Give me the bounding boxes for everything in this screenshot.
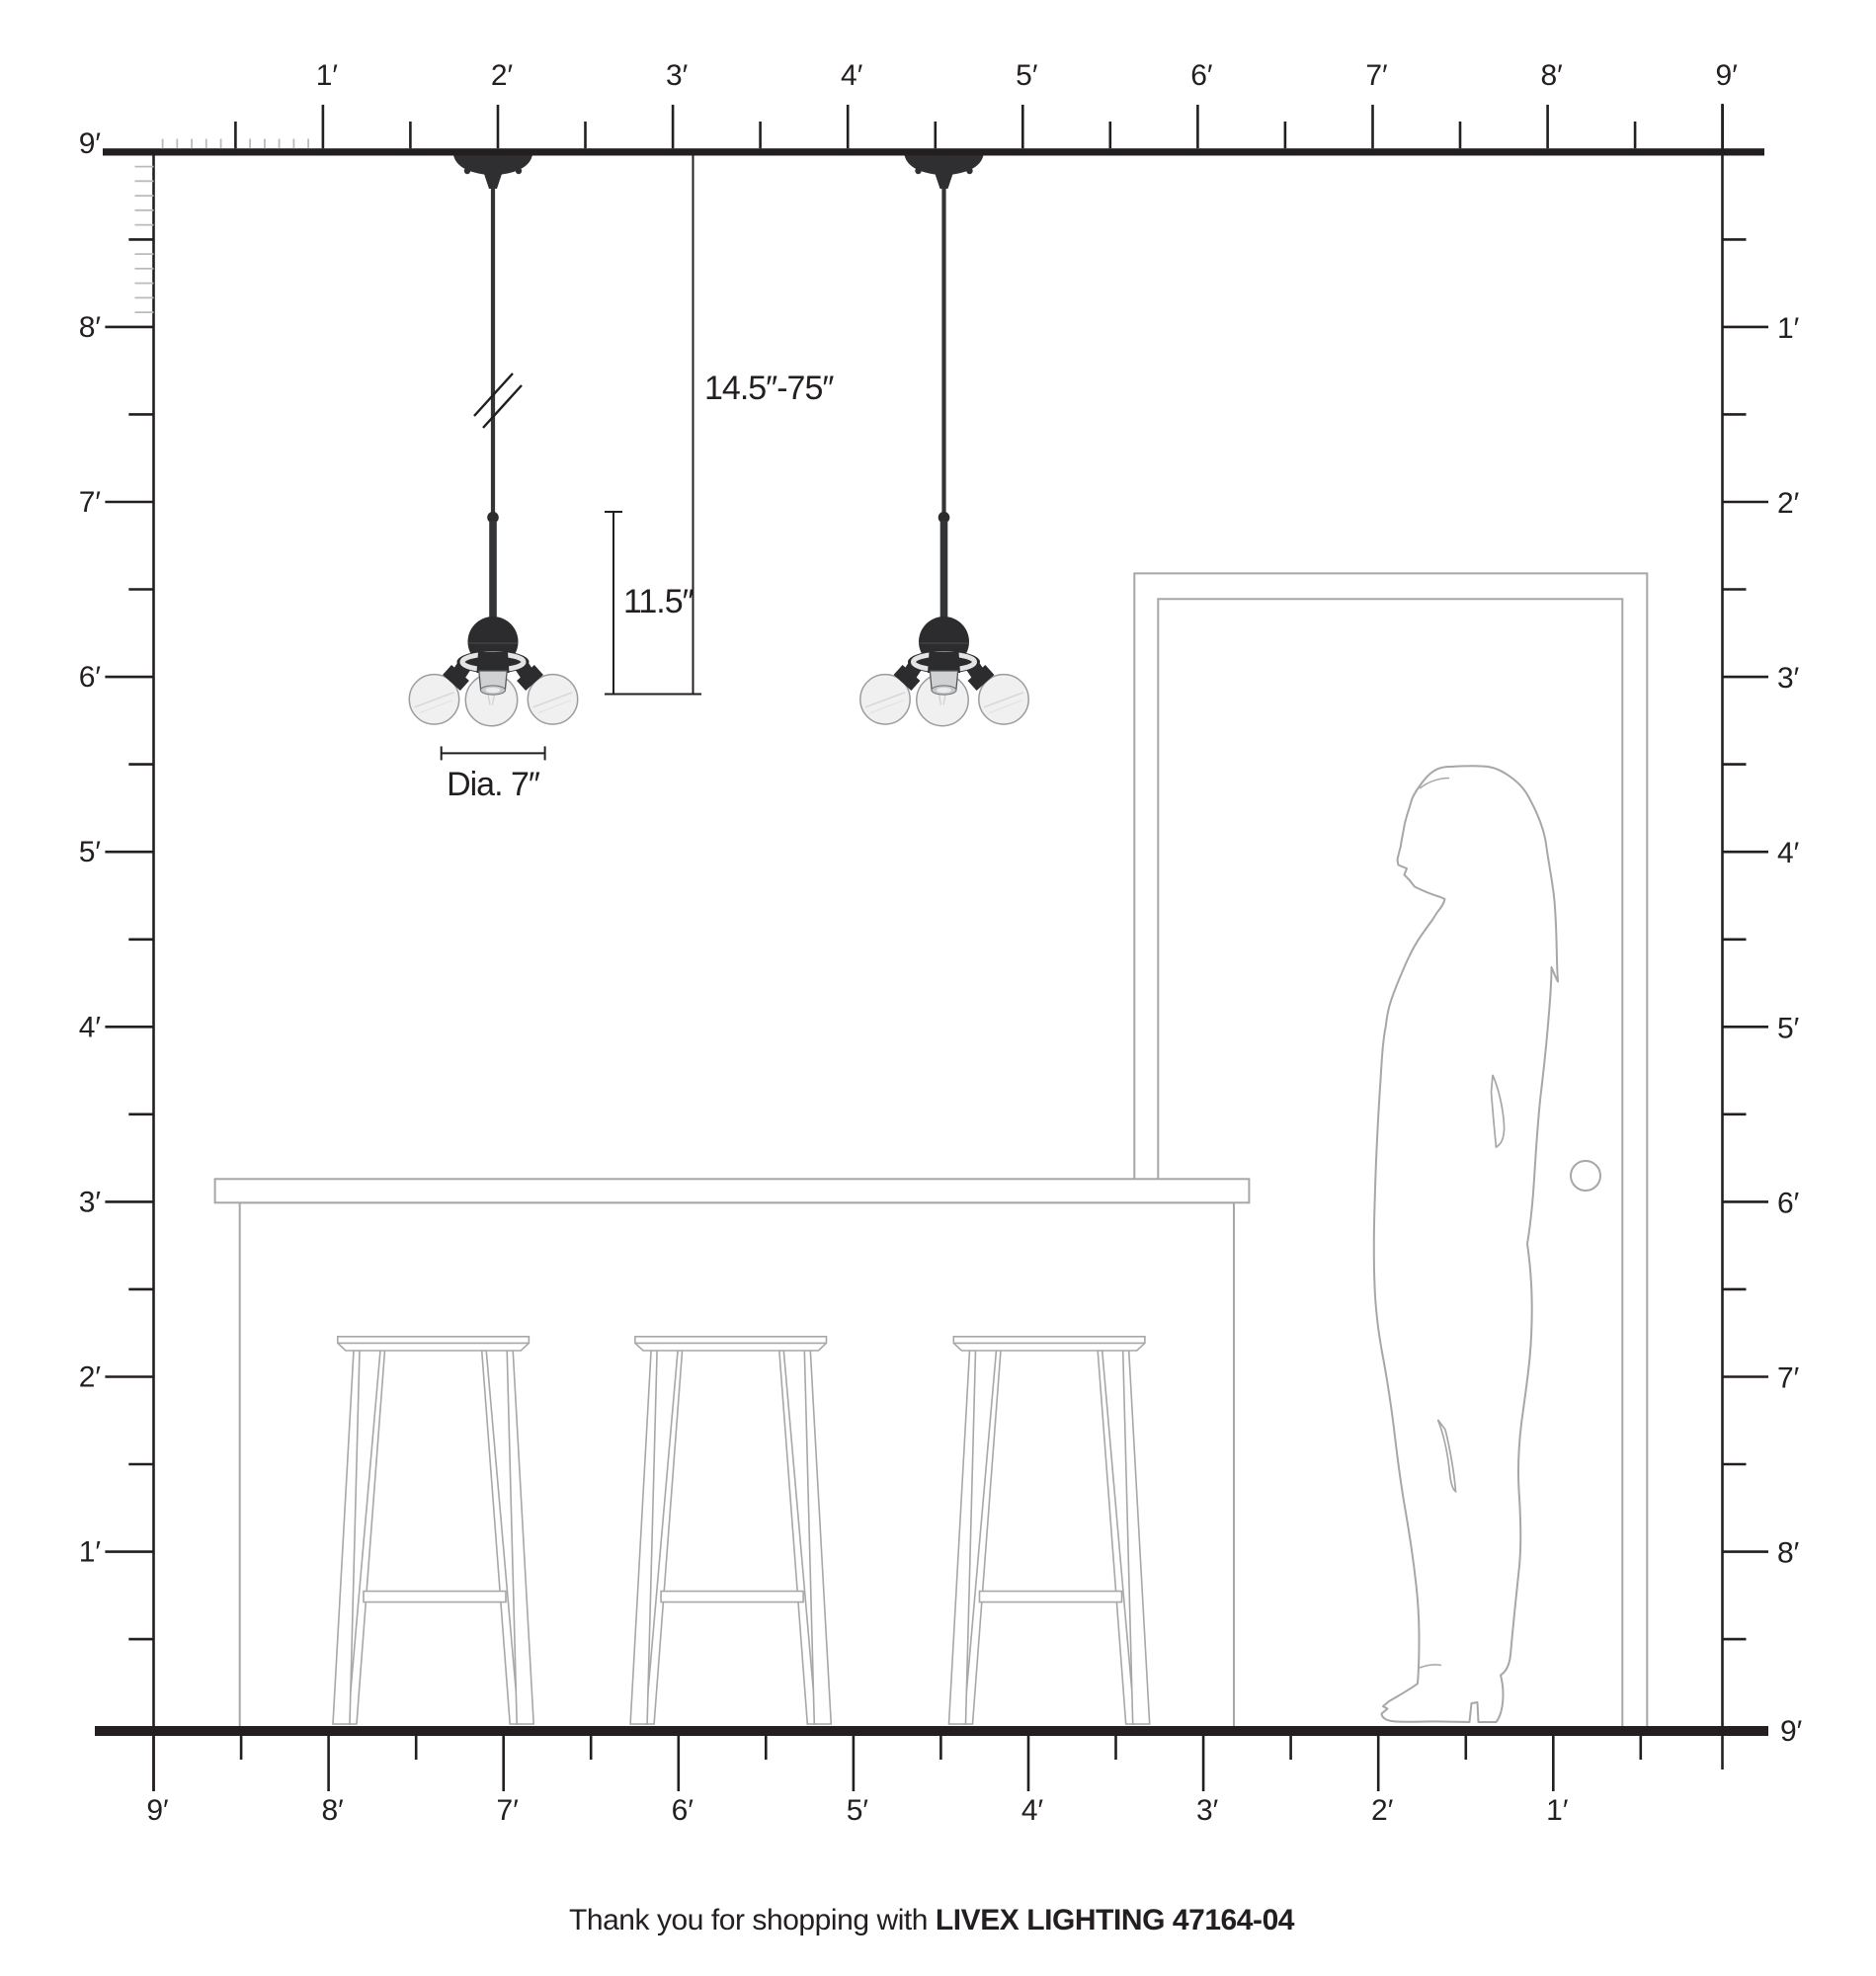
svg-text:3′: 3′ xyxy=(1777,662,1800,695)
svg-text:Thank you for shopping with LI: Thank you for shopping with LIVEX LIGHTI… xyxy=(569,1904,1295,1936)
svg-text:4′: 4′ xyxy=(1021,1794,1044,1827)
svg-text:7′: 7′ xyxy=(1777,1362,1800,1395)
svg-text:9′: 9′ xyxy=(79,127,102,160)
svg-text:4′: 4′ xyxy=(841,59,863,92)
svg-text:3′: 3′ xyxy=(666,59,689,92)
svg-text:6′: 6′ xyxy=(672,1794,694,1827)
svg-text:6′: 6′ xyxy=(1190,59,1213,92)
svg-text:5′: 5′ xyxy=(79,836,102,868)
svg-text:4′: 4′ xyxy=(79,1011,102,1043)
svg-text:9′: 9′ xyxy=(1780,1715,1803,1748)
svg-text:5′: 5′ xyxy=(1016,59,1038,92)
svg-text:1′: 1′ xyxy=(1546,1794,1569,1827)
svg-text:3′: 3′ xyxy=(1196,1794,1219,1827)
svg-text:1′: 1′ xyxy=(79,1536,102,1569)
svg-text:5′: 5′ xyxy=(1777,1012,1800,1044)
svg-text:2′: 2′ xyxy=(79,1361,102,1394)
svg-text:11.5″: 11.5″ xyxy=(623,583,694,620)
svg-text:2′: 2′ xyxy=(1371,1794,1394,1827)
svg-text:9′: 9′ xyxy=(1716,59,1739,92)
svg-text:9′: 9′ xyxy=(146,1794,169,1827)
svg-text:2′: 2′ xyxy=(1777,487,1800,520)
svg-text:5′: 5′ xyxy=(847,1794,869,1827)
svg-text:3′: 3′ xyxy=(79,1186,102,1218)
svg-text:7′: 7′ xyxy=(1365,59,1388,92)
svg-text:6′: 6′ xyxy=(1777,1187,1800,1219)
svg-text:14.5″-75″: 14.5″-75″ xyxy=(704,370,834,407)
svg-text:7′: 7′ xyxy=(79,486,102,519)
svg-text:8′: 8′ xyxy=(1777,1537,1800,1570)
svg-text:8′: 8′ xyxy=(79,311,102,344)
svg-text:7′: 7′ xyxy=(497,1794,520,1827)
svg-text:Dia. 7″: Dia. 7″ xyxy=(447,766,540,803)
svg-text:8′: 8′ xyxy=(1540,59,1563,92)
svg-text:4′: 4′ xyxy=(1777,837,1800,869)
svg-text:2′: 2′ xyxy=(491,59,514,92)
svg-text:1′: 1′ xyxy=(316,59,339,92)
svg-text:6′: 6′ xyxy=(79,661,102,694)
svg-text:1′: 1′ xyxy=(1777,312,1800,345)
svg-text:8′: 8′ xyxy=(321,1794,344,1827)
